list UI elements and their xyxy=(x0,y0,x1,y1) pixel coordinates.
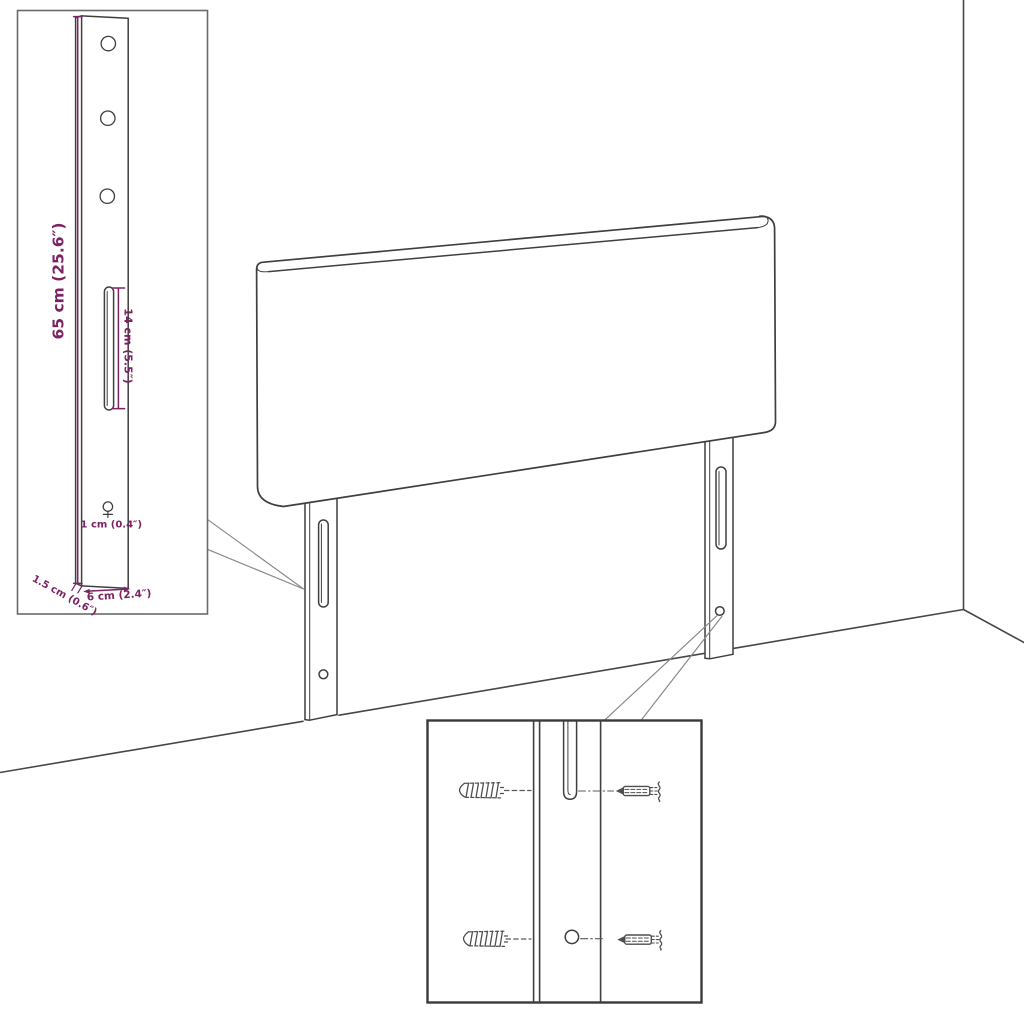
mounting-detail-inset xyxy=(428,721,702,1003)
inset-frame xyxy=(428,721,702,1003)
dimension-height-label: 65 cm (25.6″) xyxy=(50,222,68,339)
right-leg-hole xyxy=(716,607,725,616)
bracket-detail-inset: 65 cm (25.6″) 14 cm (5.5″) 1 cm (0.4″) 1… xyxy=(18,11,208,619)
diagram-svg: 65 cm (25.6″) 14 cm (5.5″) 1 cm (0.4″) 1… xyxy=(0,0,1024,1024)
right-leg-slot xyxy=(716,467,726,549)
dimension-slot-label: 14 cm (5.5″) xyxy=(122,308,135,383)
headboard-panel xyxy=(257,216,776,507)
left-leg-hole xyxy=(319,670,328,679)
headboard-outline xyxy=(257,216,776,506)
floor-line-right xyxy=(964,610,1024,643)
left-leg xyxy=(305,499,337,721)
right-leg xyxy=(705,438,733,659)
product-dimension-diagram: 65 cm (25.6″) 14 cm (5.5″) 1 cm (0.4″) 1… xyxy=(0,0,1024,1024)
callout-lines-bracket-inset xyxy=(208,520,304,589)
dimension-hole-diameter: 1 cm (0.4″) xyxy=(81,520,143,531)
left-leg-slot xyxy=(319,520,329,607)
dimension-hole-label: 1 cm (0.4″) xyxy=(81,520,143,531)
